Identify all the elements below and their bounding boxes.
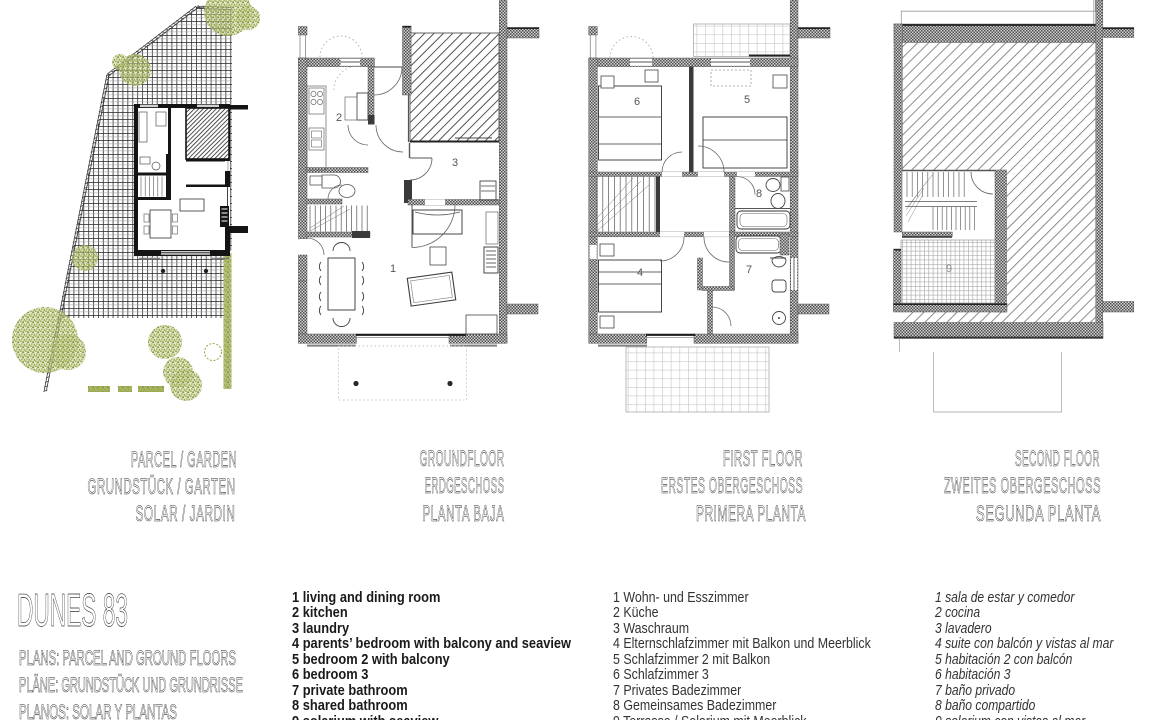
svg-text:PLÄNE: GRUNDSTÜCK UND GRUNDRIS: PLÄNE: GRUNDSTÜCK UND GRUNDRISSE	[19, 674, 243, 697]
svg-text:ZWEITES OBERGESCHOSS: ZWEITES OBERGESCHOSS	[944, 473, 1101, 498]
svg-text:2: 2	[336, 112, 342, 124]
svg-text:7: 7	[746, 264, 752, 276]
svg-text:PLANTA BAJA: PLANTA BAJA	[423, 501, 505, 526]
svg-text:PRIMERA PLANTA: PRIMERA PLANTA	[696, 501, 806, 526]
svg-text:PARCEL / GARDEN: PARCEL / GARDEN	[131, 447, 237, 472]
svg-text:ERSTES OBERGESCHOSS: ERSTES OBERGESCHOSS	[661, 473, 803, 498]
svg-text:SEGUNDA PLANTA: SEGUNDA PLANTA	[976, 501, 1101, 526]
svg-text:DUNES 83: DUNES 83	[17, 584, 128, 636]
svg-text:9: 9	[946, 263, 952, 275]
svg-text:1: 1	[390, 263, 396, 275]
svg-text:5: 5	[744, 94, 750, 106]
svg-text:PLANOS: SOLAR Y PLANTAS: PLANOS: SOLAR Y PLANTAS	[19, 701, 177, 720]
svg-text:4: 4	[637, 267, 643, 279]
svg-text:FIRST FLOOR: FIRST FLOOR	[723, 446, 803, 471]
svg-text:3: 3	[452, 157, 458, 169]
svg-text:6: 6	[634, 96, 640, 108]
svg-text:GRUNDSTÜCK / GARTEN: GRUNDSTÜCK / GARTEN	[88, 474, 236, 499]
svg-text:ERDGESCHOSS: ERDGESCHOSS	[425, 473, 505, 498]
svg-text:8: 8	[756, 188, 762, 200]
svg-text:PLANS: PARCEL AND GROUND FLOOR: PLANS: PARCEL AND GROUND FLOORS	[19, 647, 236, 670]
svg-text:SOLAR / JARDIN: SOLAR / JARDIN	[136, 501, 236, 526]
svg-text:GROUNDFLOOR: GROUNDFLOOR	[420, 446, 505, 471]
svg-text:SECOND FLOOR: SECOND FLOOR	[1015, 446, 1100, 471]
